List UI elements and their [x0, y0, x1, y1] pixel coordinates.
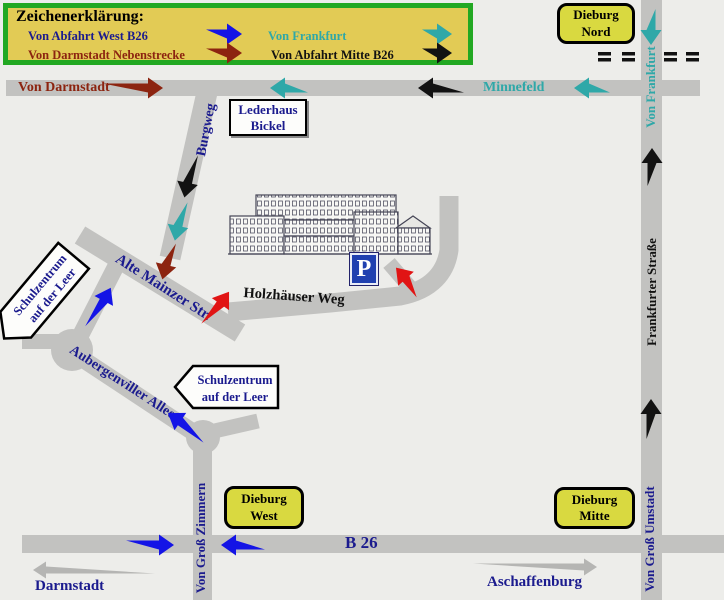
schulzentrum-sign: Schulzentrum auf der Leer	[175, 366, 278, 408]
legend-entry: Von Darmstadt Nebenstrecke	[28, 48, 185, 63]
sign-line: West	[250, 508, 277, 524]
sign-line: Nord	[582, 24, 611, 40]
label-aschaffenburg: Aschaffenburg	[487, 574, 582, 591]
route-map: Schulzentrum auf der Leer Schulzentrum a…	[0, 0, 724, 600]
sign-line: Dieburg	[572, 492, 618, 508]
label-b26: B 26	[345, 533, 378, 553]
parking-icon: P	[349, 252, 379, 286]
road-minnefeld	[6, 80, 700, 96]
school-building-illustration	[228, 195, 432, 254]
label-darmstadt: Darmstadt	[35, 578, 104, 595]
legend-box: Zeichenerklärung: Von Abfahrt West B26 V…	[3, 3, 473, 65]
label-von-gross-umstadt: Von Groß Umstadt	[642, 486, 658, 591]
sign-line: Dieburg	[573, 7, 619, 23]
exit-sign-dieburg-nord: Dieburg Nord	[557, 3, 635, 44]
exit-sign-dieburg-west: Dieburg West	[224, 486, 304, 529]
label-von-gross-zimmern: Von Groß Zimmern	[193, 483, 209, 594]
legend-title: Zeichenerklärung:	[16, 8, 144, 26]
legend-entry: Von Frankfurt	[268, 29, 346, 44]
legend-entry: Von Abfahrt West B26	[28, 29, 148, 44]
label-frankfurter-strasse: Frankfurter Straße	[644, 238, 660, 346]
road-east-stub	[210, 421, 258, 432]
sign-text: Schulzentrum	[198, 373, 274, 387]
sign-line: Dieburg	[241, 491, 287, 507]
label-von-frankfurt: Von Frankfurt	[643, 46, 659, 128]
sign-line: Lederhaus	[238, 102, 297, 118]
landmark-lederhaus-bickel: Lederhaus Bickel	[229, 99, 307, 136]
label-minnefeld: Minnefeld	[483, 80, 544, 96]
sign-line: Bickel	[251, 118, 286, 134]
sign-text: auf der Leer	[202, 390, 269, 404]
exit-sign-dieburg-mitte: Dieburg Mitte	[554, 487, 635, 529]
parking-letter: P	[357, 256, 372, 283]
label-von-darmstadt: Von Darmstadt	[18, 80, 110, 96]
sign-line: Mitte	[579, 508, 609, 524]
legend-entry: Von Abfahrt Mitte B26	[271, 48, 394, 63]
